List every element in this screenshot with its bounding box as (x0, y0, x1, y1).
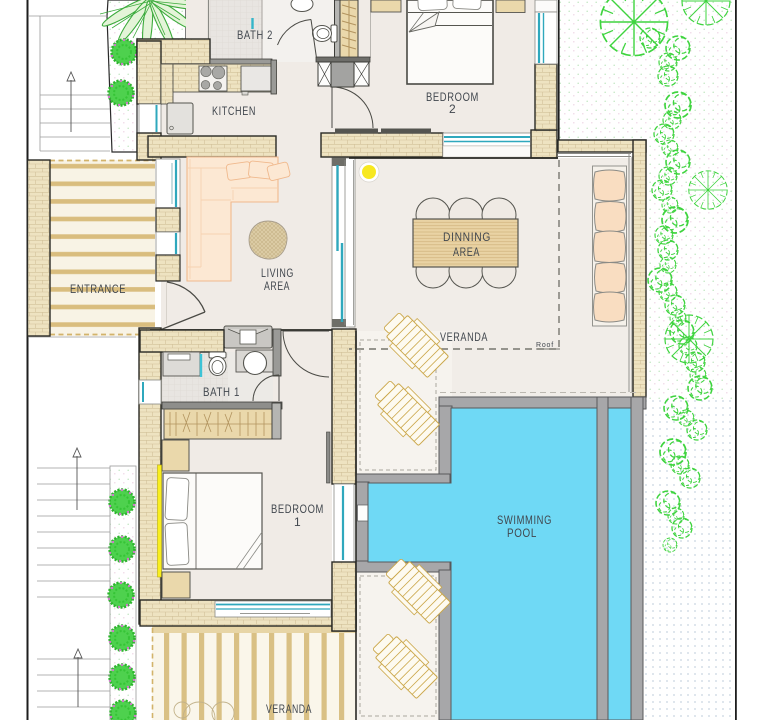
svg-text:BEDROOM: BEDROOM (271, 502, 324, 516)
svg-text:KITCHEN: KITCHEN (212, 104, 256, 118)
svg-text:2: 2 (449, 102, 456, 116)
svg-text:ENTRANCE: ENTRANCE (70, 282, 126, 296)
svg-text:POOL: POOL (507, 526, 537, 540)
svg-text:DINNING: DINNING (443, 230, 491, 244)
svg-text:SWIMMING: SWIMMING (497, 513, 552, 527)
svg-text:Roof: Roof (536, 342, 554, 349)
svg-text:AREA: AREA (453, 245, 480, 259)
svg-text:VERANDA: VERANDA (440, 330, 488, 344)
svg-text:AREA: AREA (264, 279, 290, 293)
svg-text:BATH 1: BATH 1 (203, 385, 240, 399)
svg-text:VERANDA: VERANDA (266, 702, 312, 716)
svg-text:1: 1 (294, 515, 301, 529)
svg-text:LIVING: LIVING (261, 266, 294, 280)
svg-text:BATH 2: BATH 2 (237, 28, 273, 42)
